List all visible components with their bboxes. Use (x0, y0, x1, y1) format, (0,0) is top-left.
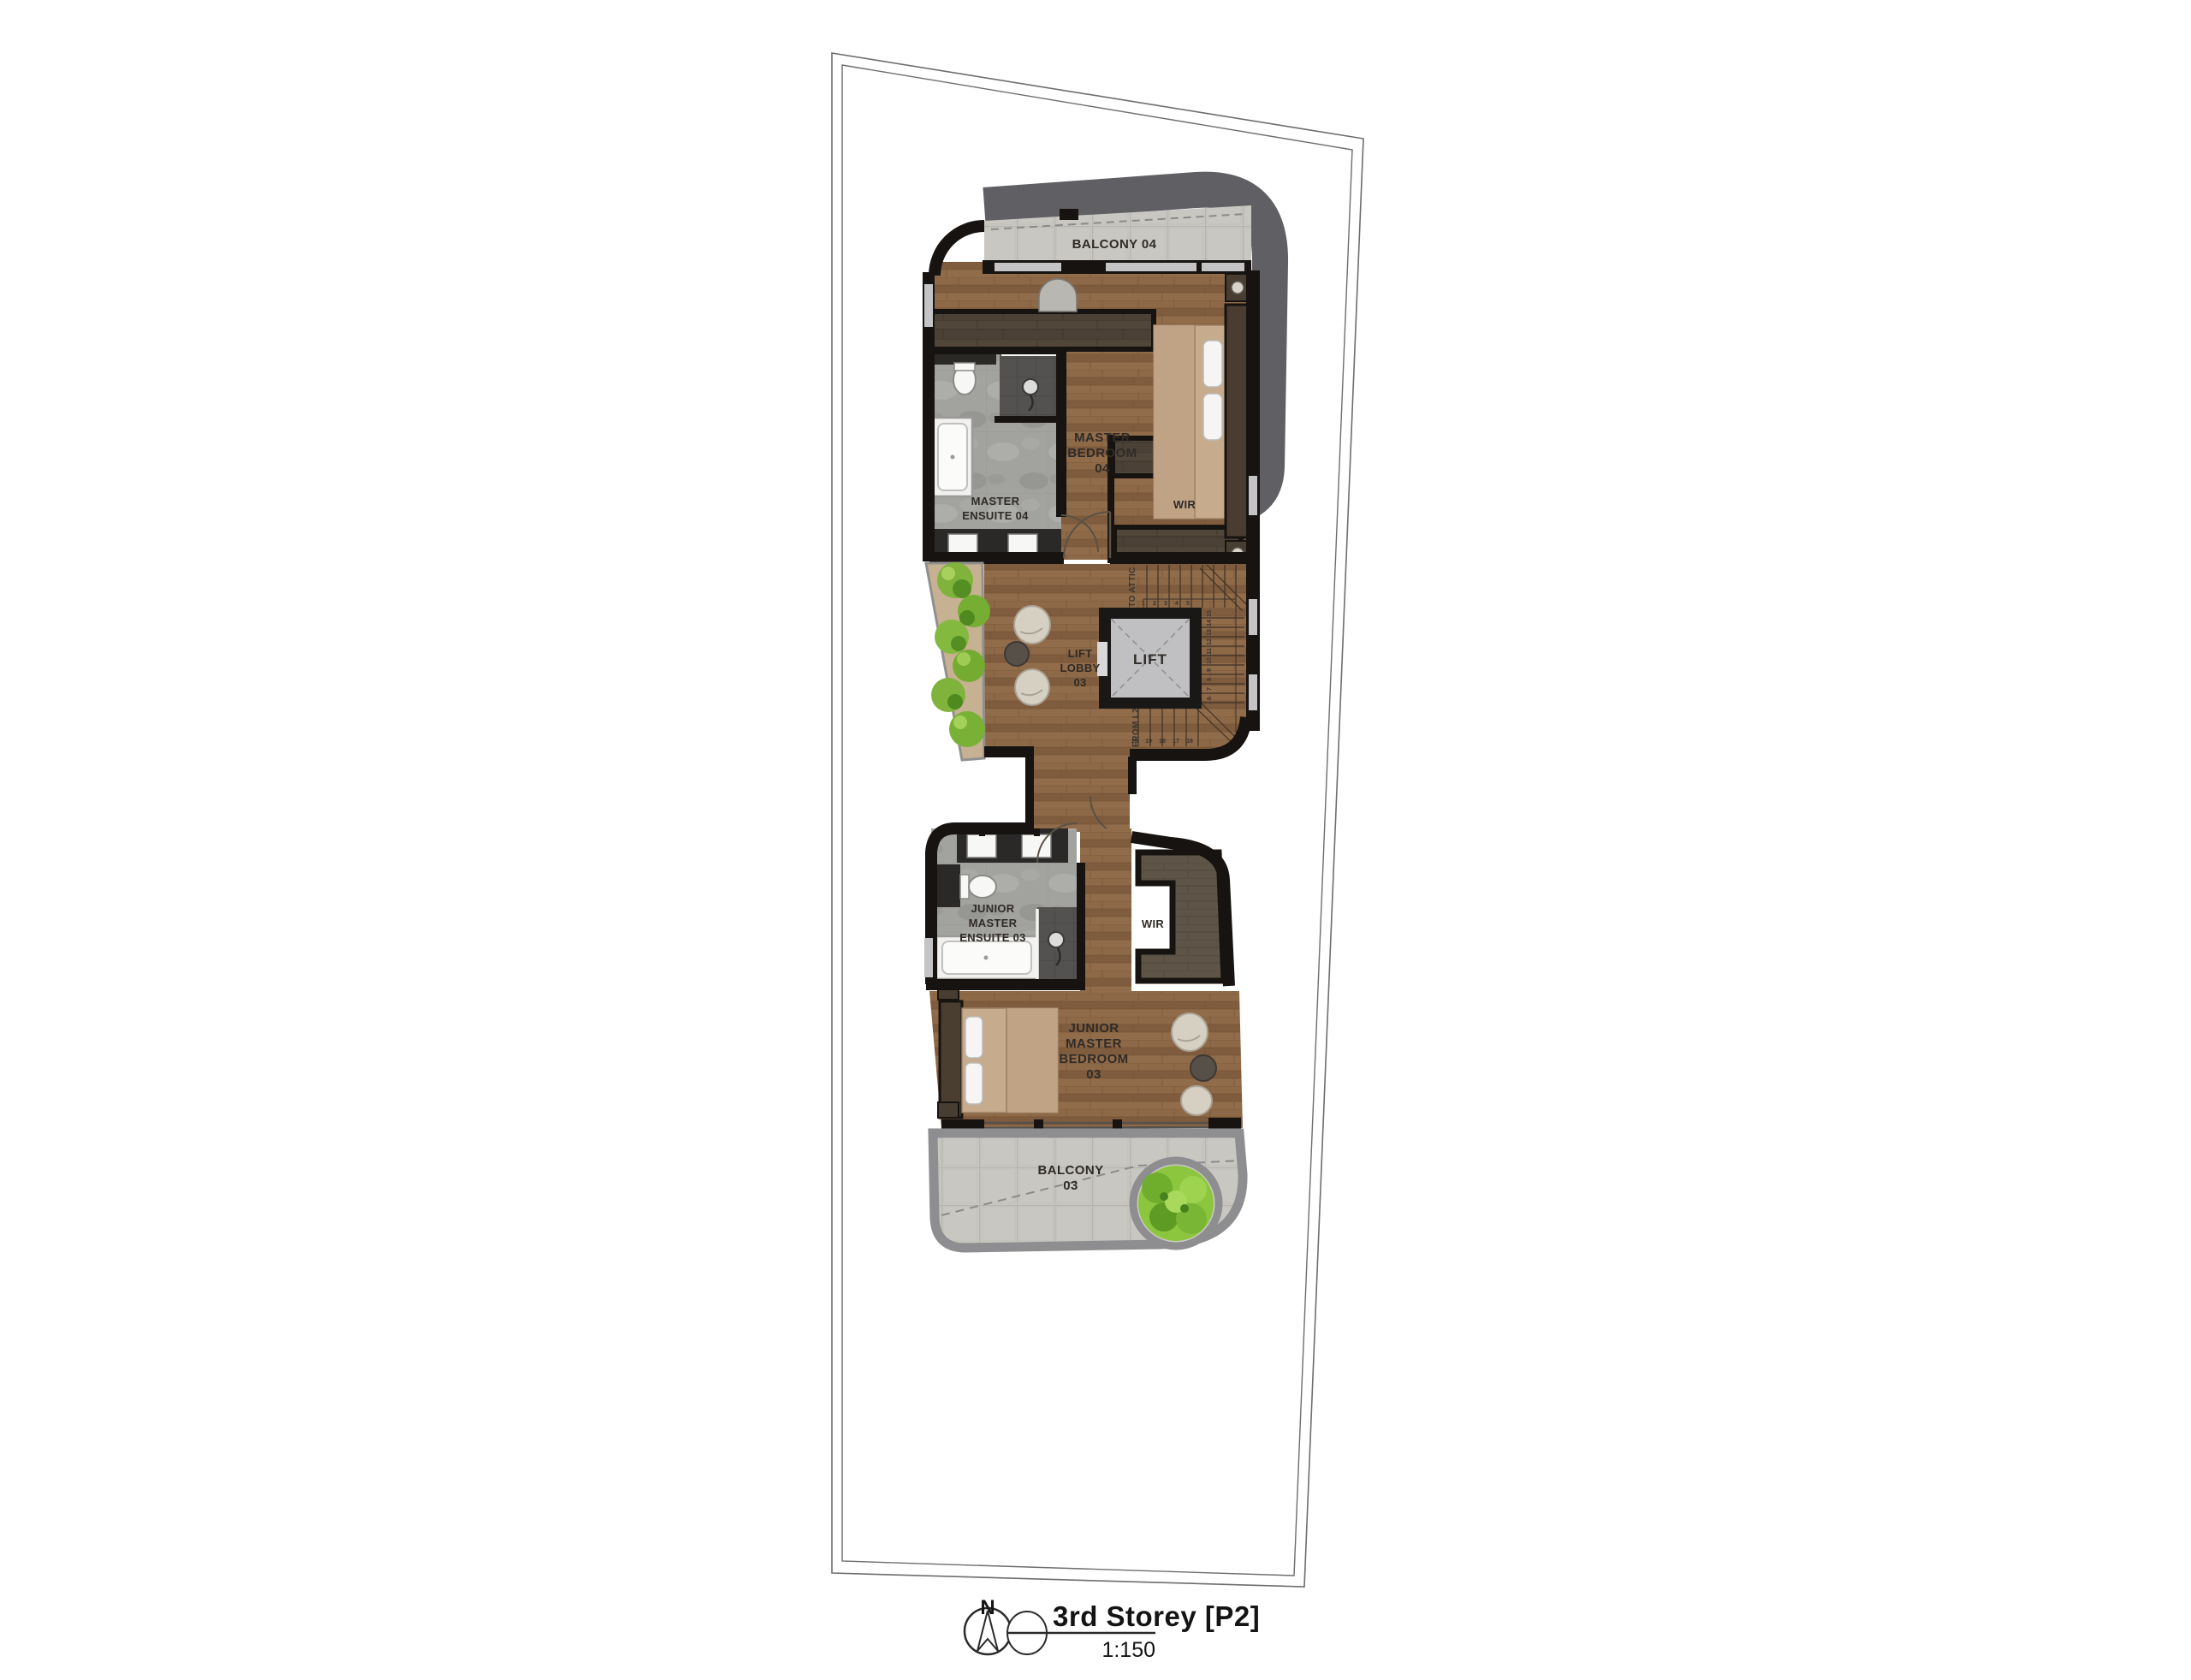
wall-east-04 (1246, 270, 1260, 561)
sink-03-right-tap (1034, 828, 1040, 836)
sheet-scale: 1:150 (1101, 1638, 1155, 1662)
stair-num: 19 (1145, 739, 1152, 745)
balcony-door-track-2 (984, 1127, 1208, 1128)
to-attic-label: TO ATTIC (1128, 567, 1137, 607)
lobby-stool-dark (1005, 642, 1029, 666)
lower-wing-junior-suite-03: JUNIOR MASTER ENSUITE 03 WIR JUNIOR MAST… (924, 823, 1243, 1248)
wall-ensuite-03-south (926, 979, 1085, 990)
master-bedroom-04-label-3: 04 (1095, 461, 1110, 476)
wall-south-03-right (1208, 1118, 1241, 1130)
stair-num: 18 (1159, 739, 1166, 745)
toilet-03-tank (960, 875, 969, 899)
wir-04-label: WIR (1173, 498, 1196, 511)
toilet-04-tank (954, 363, 975, 371)
window-east-04 (1249, 476, 1257, 515)
window-east-core-1 (1249, 599, 1257, 635)
stair-num: 2 (1153, 601, 1156, 607)
lift-label: LIFT (1133, 651, 1167, 668)
from-l2-label: FROM L2 (1131, 708, 1141, 747)
toilet-03 (969, 876, 996, 898)
stair-num: 1 (1142, 601, 1145, 607)
junior-bedroom-03-label-2: MASTER (1066, 1036, 1122, 1051)
wall-ensuite-04-north (929, 347, 1066, 354)
shower-head-icon (1048, 932, 1064, 947)
window-balcony-04-right (1202, 263, 1244, 271)
bed-04-pillow-bottom (1203, 394, 1222, 440)
stair-num: 14 (1207, 620, 1213, 626)
master-bedroom-04-label-1: MASTER (1074, 430, 1131, 445)
lamp-icon (1232, 282, 1244, 294)
junior-ensuite-03-label-2: MASTER (969, 917, 1018, 929)
lift-lobby-03-label-1: LIFT (1068, 647, 1093, 660)
stair-num: 11 (1207, 648, 1213, 655)
sheet-title: 3rd Storey [P2] (1053, 1600, 1260, 1632)
wall-corridor-west (1025, 757, 1034, 832)
arched-niche (1039, 279, 1077, 312)
bed-03-headboard (940, 1001, 962, 1118)
wall-corridor-east (1128, 757, 1137, 794)
bed-04-pillow-top (1203, 341, 1222, 387)
junior-bedroom-03-label-3: BEDROOM (1059, 1052, 1128, 1066)
title-block: N 3rd Storey [P2] 1:150 (965, 1596, 1260, 1662)
bedroom-03-pouf-bottom (1181, 1086, 1212, 1115)
bed-04-blanket (1154, 325, 1195, 519)
junior-bedroom-03-label-1: JUNIOR (1068, 1021, 1119, 1036)
master-bedroom-04-label-2: BEDROOM (1067, 446, 1137, 460)
stair-num: 12 (1207, 638, 1213, 645)
master-ensuite-04-label-2: ENSUITE 04 (962, 509, 1029, 522)
balcony-04-label: BALCONY 04 (1072, 237, 1157, 252)
north-arrow-icon: N (965, 1596, 1011, 1654)
bathtub-03-drain (984, 956, 989, 960)
lift-lobby-03-label-2: LOBBY (1060, 662, 1101, 674)
junior-bedroom-03-label-4: 03 (1086, 1067, 1101, 1082)
junior-passage-floor (1080, 828, 1131, 993)
window-west-04 (924, 284, 933, 327)
floor-plan-sheet: BALCONY 04 MASTER BEDROOM 04 MASTER ENSU… (0, 0, 2191, 1680)
stair-num: 17 (1173, 739, 1179, 745)
window-balcony-04-left (995, 263, 1061, 271)
window-balcony-04-mid (1106, 263, 1196, 271)
balcony-03-shrub (1133, 1161, 1219, 1246)
balcony-04-wall-stub (1060, 209, 1078, 220)
corridor-floor (1034, 751, 1130, 832)
junior-ensuite-03-label-3: ENSUITE 03 (959, 931, 1025, 944)
nightstand-03-bottom (938, 1102, 959, 1118)
shower-head-icon (1023, 379, 1038, 395)
wall-shower-04-south (995, 416, 1066, 423)
window-west-03 (924, 938, 933, 977)
stair-num: 15 (1207, 610, 1213, 617)
wall-south-04-right (1110, 552, 1251, 564)
bedroom-03-stool-dark (1191, 1055, 1216, 1081)
stair-num: 4 (1175, 601, 1179, 607)
balcony-03-label-1: BALCONY (1038, 1163, 1104, 1178)
bed-03-pillow-bottom (965, 1063, 983, 1104)
balcony-door-stub-1 (1034, 1119, 1043, 1129)
wall-lobby-south (984, 746, 1034, 757)
bed-03-pillow-top (965, 1017, 983, 1058)
bed-03-blanket (1006, 1008, 1058, 1113)
wall-ensuite-03-east (1077, 863, 1085, 984)
north-label: N (980, 1596, 995, 1619)
master-ensuite-04-label-1: MASTER (971, 495, 1020, 508)
stair-num: 5 (1186, 601, 1190, 607)
bedroom-03-pouf-top (1172, 1013, 1208, 1051)
stair-num: 9 (1207, 668, 1213, 672)
stair-num: 10 (1207, 657, 1213, 664)
wall-ensuite-04-east (1056, 353, 1066, 517)
junior-ensuite-03-label-1: JUNIOR (971, 902, 1015, 915)
stair-num: 3 (1164, 601, 1167, 607)
wir-03-label: WIR (1142, 917, 1164, 930)
balcony-03-label-2: 03 (1063, 1178, 1078, 1193)
floor-plan-canvas: BALCONY 04 MASTER BEDROOM 04 MASTER ENSU… (0, 0, 2191, 1680)
master-04-wardrobe-strip (931, 312, 1154, 349)
window-east-core-2 (1249, 674, 1257, 710)
stair-num: 6 (1207, 697, 1213, 700)
stair-num: 7 (1207, 687, 1213, 691)
lobby-pouf-top (1014, 606, 1050, 644)
stair-num: 8 (1207, 678, 1213, 681)
stair-num: 13 (1207, 629, 1213, 636)
lobby-pouf-bottom (1015, 669, 1049, 705)
bathtub-04-drain (951, 455, 955, 460)
lift-lobby-03-label-3: 03 (1073, 676, 1086, 689)
balcony-door-stub-2 (1113, 1119, 1122, 1129)
sink-03-left (967, 834, 996, 858)
stair-num: 16 (1186, 739, 1193, 745)
